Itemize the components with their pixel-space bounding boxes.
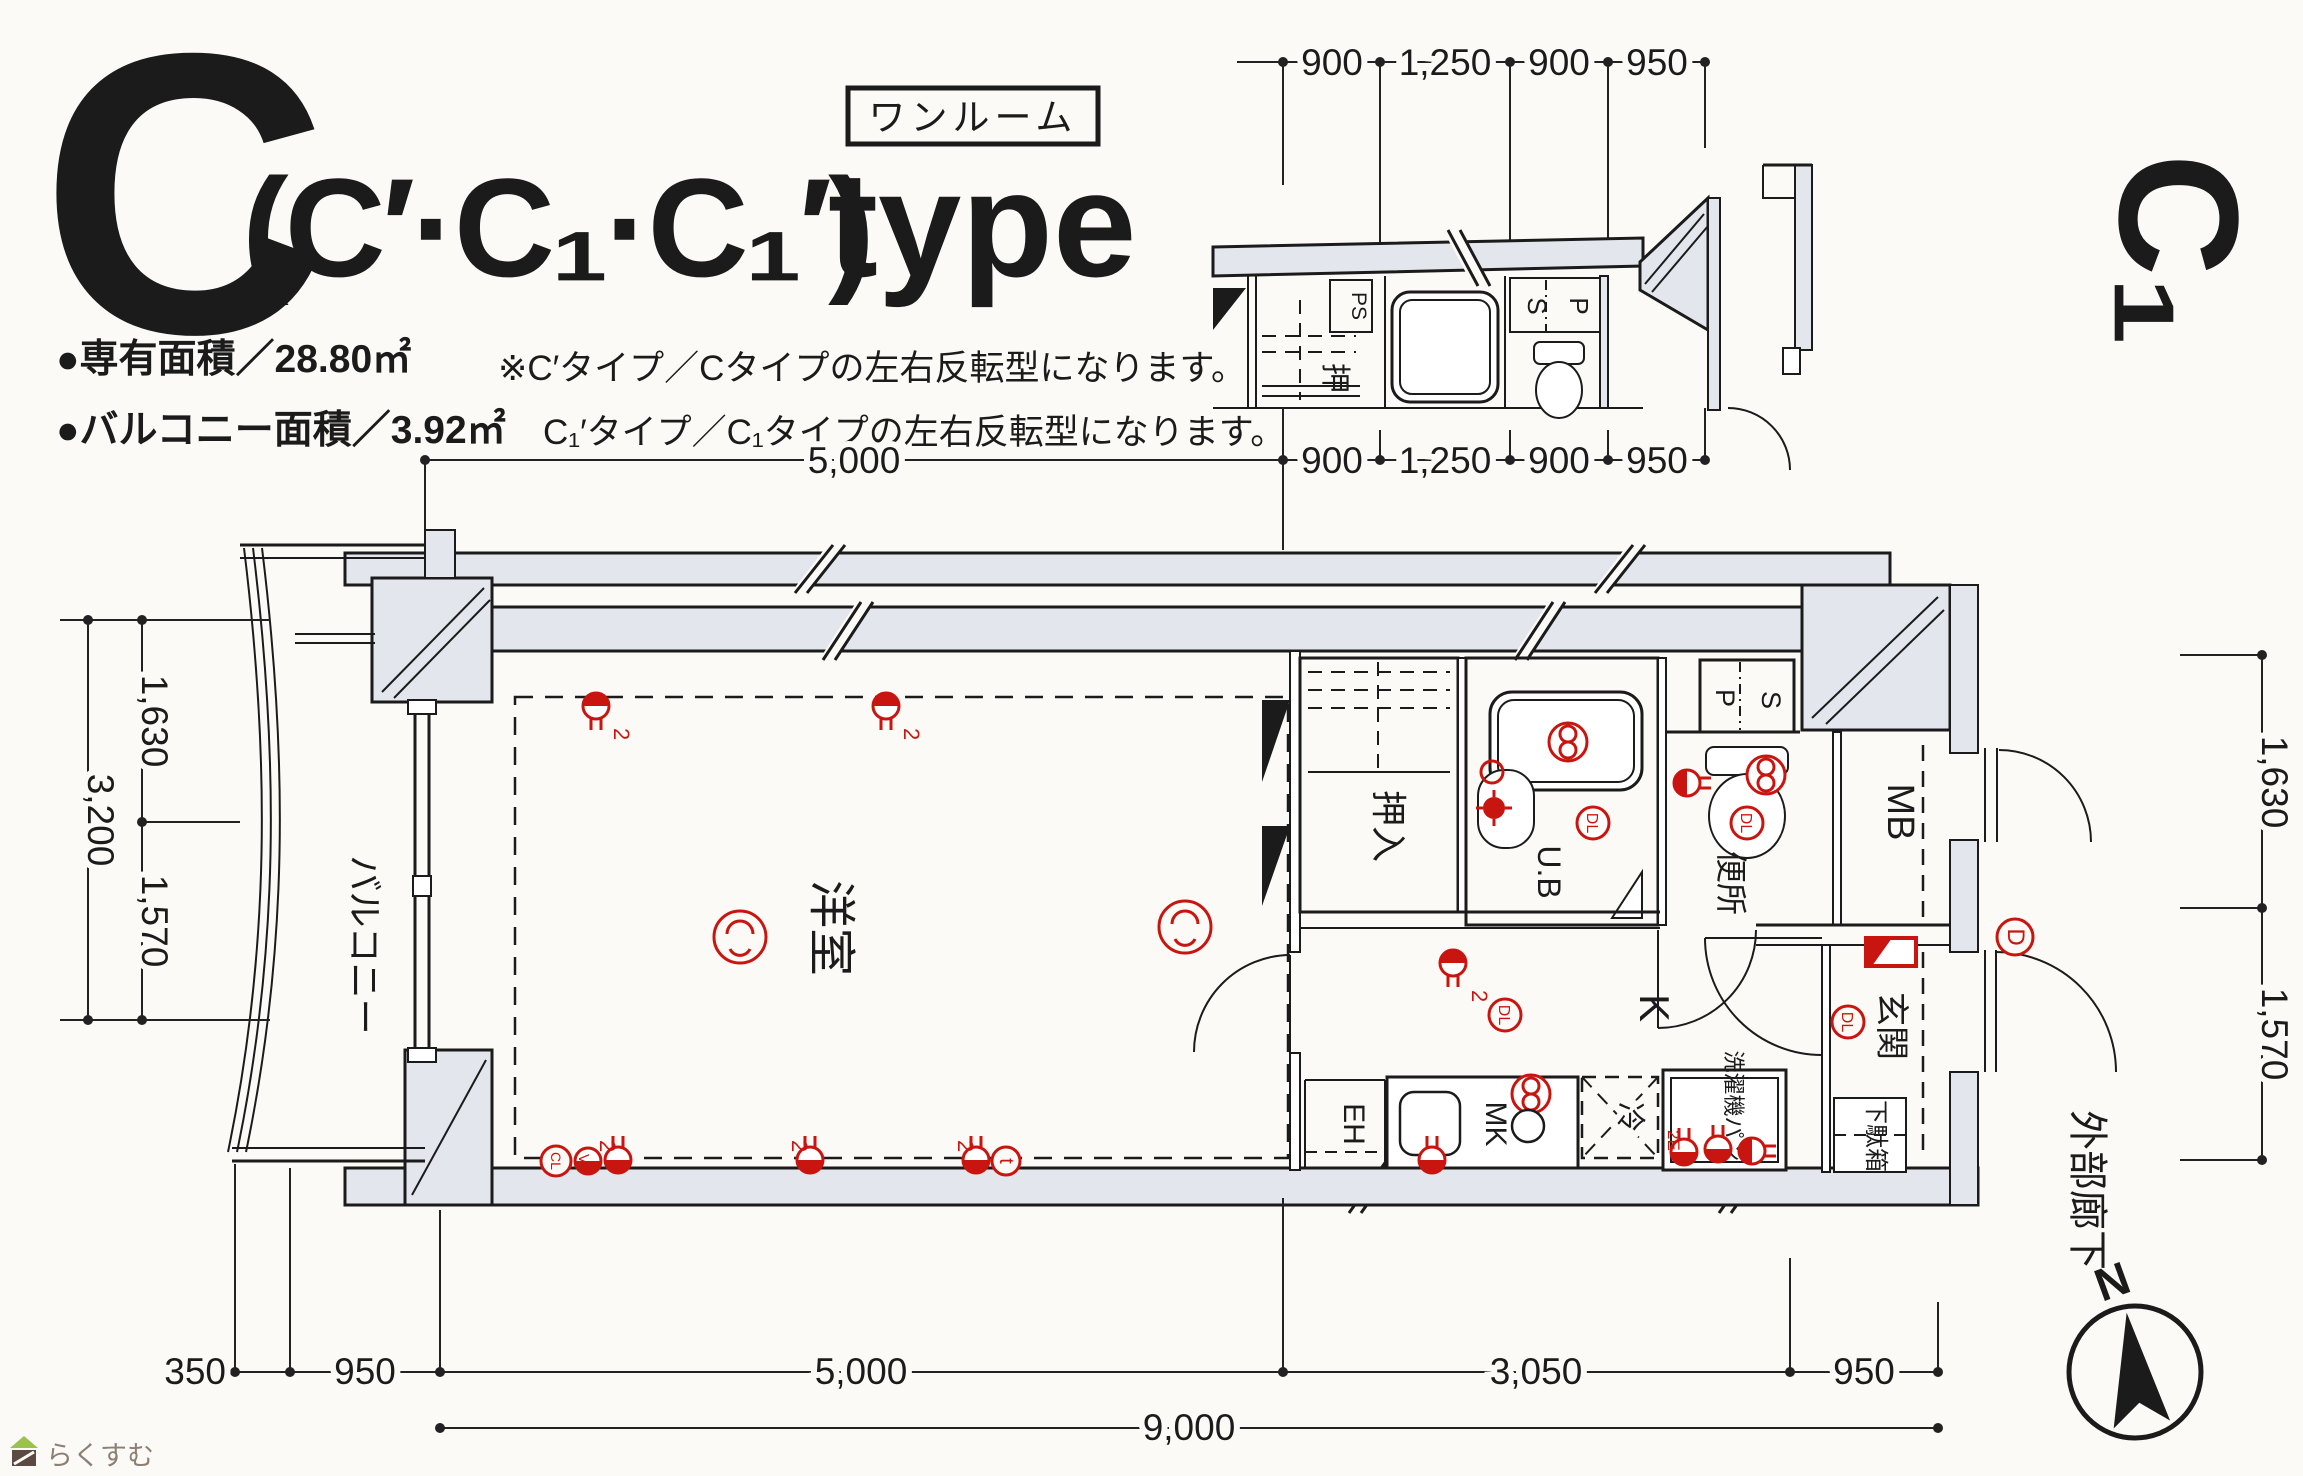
eh-label: EH	[1337, 1103, 1370, 1145]
outlet-icon	[583, 693, 609, 730]
outlet-count: 2	[953, 1140, 978, 1152]
svg-text:V: V	[575, 1154, 592, 1164]
north-arrow-icon	[2098, 1309, 2170, 1429]
dim-bottom-950a: 950	[334, 1351, 396, 1392]
mini-dim-extensions	[1283, 62, 1705, 255]
stove-burner	[1512, 1110, 1544, 1142]
closet-door	[1262, 700, 1290, 782]
oneroom-tag: ワンルーム	[869, 97, 1078, 138]
mini-plan: 900 1,250 900 950 PS S P	[1213, 42, 1812, 470]
title-word: type	[828, 140, 1136, 308]
outlet-tag: 2E	[1664, 1130, 1683, 1151]
outlet-count: 2	[609, 728, 634, 740]
living-room-label: 洋室	[804, 880, 857, 976]
closet-door	[1262, 826, 1290, 906]
dim-mini-900b: 900	[1528, 42, 1590, 83]
washer-pan: 洗濯機パン 2E	[1663, 1050, 1786, 1170]
service-door-arc	[1999, 750, 2091, 842]
mini-ps-label: PS	[1347, 292, 1370, 320]
outlet-count: 2	[787, 1140, 812, 1152]
downlight-icon: DL	[1737, 813, 1754, 834]
mini-door-arc	[1728, 408, 1790, 470]
side-type-label: C₁	[2083, 153, 2273, 346]
outlet-icon	[1674, 770, 1711, 796]
fan-icon	[1549, 723, 1587, 761]
distribution-board-icon	[1866, 938, 1916, 966]
ps-s-label: S	[1756, 691, 1786, 709]
phone-outlet-icon: t	[995, 1158, 1017, 1164]
mini-s-label: S	[1522, 297, 1552, 314]
outlet-icon	[873, 693, 899, 730]
dim-mini-1250: 1,250	[1399, 42, 1492, 83]
mb-label: MB	[1879, 784, 1921, 841]
watermark-text: らくすむ	[46, 1441, 154, 1471]
dim-mid-5000: 5,000	[808, 440, 901, 481]
entrance-door-arc	[1996, 952, 2116, 1072]
doorbell-icon: D	[2002, 928, 2029, 945]
mini-toilet-tank	[1534, 342, 1584, 364]
dim-bottom-950b: 950	[1833, 1351, 1895, 1392]
dim-bottom-350: 350	[164, 1351, 226, 1392]
mini-wall-band	[1213, 238, 1643, 276]
dim-total-9000: 9,000	[1143, 1407, 1236, 1448]
window	[408, 700, 436, 1062]
balcony-label: バルコニー	[344, 855, 385, 1034]
compass: N	[2069, 1251, 2201, 1438]
shoebox-label: 下駄箱	[1862, 1100, 1889, 1172]
main-plan: バルコニー 洋室 押入	[228, 530, 2116, 1270]
area-balcony: ●バルコニー面積／3.92㎡	[56, 408, 506, 452]
unit-bath: DL U.B	[1458, 658, 1658, 925]
dim-mid-1250: 1,250	[1399, 440, 1492, 481]
dim-mini-900a: 900	[1301, 42, 1363, 83]
title-paren: (C′·C₁·C₁′)	[242, 149, 871, 306]
mini-closet-door	[1213, 288, 1246, 330]
note-line2: C₁′タイプ／C₁タイプの左右反転型になります。	[543, 413, 1285, 452]
mini-corner-wall	[1640, 198, 1708, 330]
window-mullion	[413, 876, 431, 896]
dim-left-1630: 1,630	[134, 675, 175, 768]
floorplan-drawing: C (C′·C₁·C₁′) ワンルーム type ●専有面積／28.80㎡ ●バ…	[0, 0, 2303, 1476]
area-exclusive: ●専有面積／28.80㎡	[56, 337, 411, 381]
mini-oshiire-label: 押	[1318, 363, 1351, 393]
kitchen-label: K	[1631, 994, 1678, 1022]
living-symbols: 2 2 CL V 2 2 2 t	[541, 693, 1020, 1176]
fan-icon	[1747, 756, 1785, 794]
pipe-space: P S	[1700, 660, 1794, 732]
ceiling-light-icon	[714, 911, 766, 963]
mini-p-label: P	[1564, 297, 1594, 314]
corridor-label: 外部廊下	[2065, 1110, 2109, 1270]
top-wall	[478, 607, 1808, 651]
dim-right-1630: 1,630	[2254, 736, 2295, 829]
floorplan-page: C (C′·C₁·C₁′) ワンルーム type ●専有面積／28.80㎡ ●バ…	[0, 0, 2303, 1476]
hall-door-arc	[1705, 938, 1822, 1055]
north-label: N	[2088, 1251, 2137, 1311]
entrance-label: 玄関	[1872, 992, 1910, 1060]
fridge-label: 冷	[1613, 1102, 1646, 1132]
upper-slab	[345, 553, 1890, 585]
mk-label: MK	[1479, 1102, 1512, 1147]
kitchen-sink	[1400, 1092, 1460, 1155]
outlet-count: 2	[1467, 990, 1492, 1002]
downlight-icon: DL	[1838, 1012, 1855, 1033]
cl-socket-icon: CL	[548, 1152, 564, 1170]
shoe-box: 下駄箱	[1834, 1098, 1906, 1172]
dimensions-left: 1,630 3,200 1,570	[60, 615, 270, 1025]
ps-p-label: P	[1710, 689, 1740, 707]
mini-bathtub	[1392, 292, 1498, 402]
dimensions-bottom: 350 950 5,000 3,050 950 9,000	[164, 1164, 1943, 1448]
outlet-count: 2	[899, 728, 924, 740]
living-door-arc	[1194, 955, 1290, 1052]
dim-mid-950: 950	[1626, 440, 1688, 481]
house-icon	[10, 1436, 38, 1466]
dim-left-3200: 3,200	[80, 774, 121, 867]
downlight-icon: DL	[1495, 1005, 1512, 1026]
dim-mini-950: 950	[1626, 42, 1688, 83]
dimensions-right: 1,630 1,570	[2180, 650, 2295, 1165]
note-line1: ※C′タイプ／Cタイプの左右反転型になります。	[498, 349, 1246, 388]
dim-bottom-3050: 3,050	[1490, 1351, 1583, 1392]
toilet-label: 便所	[1713, 851, 1749, 915]
bath-label: U.B	[1531, 845, 1567, 898]
dim-mid-900b: 900	[1528, 440, 1590, 481]
mini-toilet-bowl	[1536, 362, 1582, 418]
outlet-count: 2	[595, 1140, 620, 1152]
dim-left-1570: 1,570	[134, 875, 175, 968]
outlet-icon	[1440, 950, 1466, 987]
dim-bottom-5000: 5,000	[815, 1351, 908, 1392]
refrigerator: 冷	[1582, 1077, 1658, 1158]
downlight-icon: DL	[1583, 813, 1600, 834]
watermark: らくすむ	[10, 1436, 154, 1471]
ceiling-light-icon	[1159, 901, 1211, 953]
closet-label: 押入	[1368, 790, 1409, 862]
dim-right-1570: 1,570	[2254, 988, 2295, 1081]
meter-box: MB	[1879, 745, 1923, 920]
header: C (C′·C₁·C₁′) ワンルーム type ●専有面積／28.80㎡ ●バ…	[40, 0, 2273, 452]
fan-icon	[1512, 1075, 1550, 1113]
dim-mid-900a: 900	[1301, 440, 1363, 481]
